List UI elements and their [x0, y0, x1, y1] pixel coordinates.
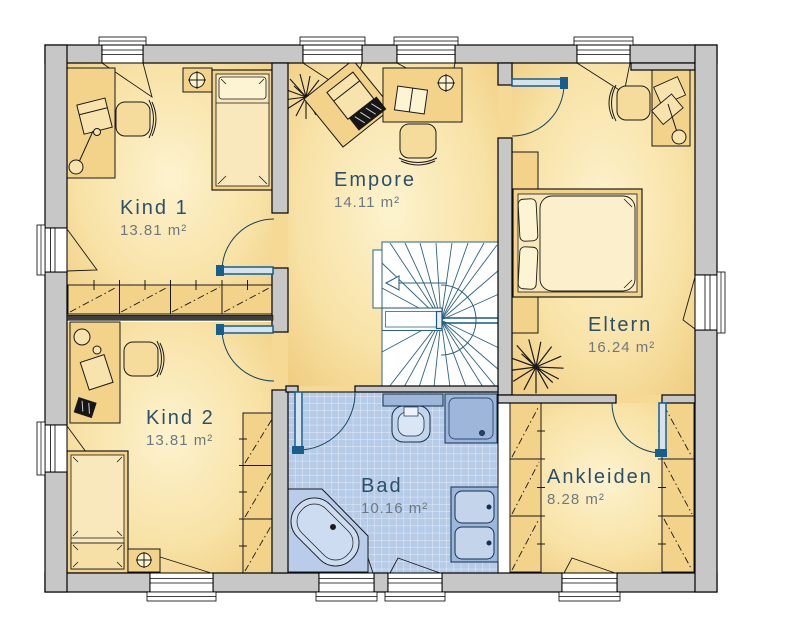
shower: [445, 394, 497, 443]
room-name: Kind 2: [146, 407, 215, 430]
room-area: 10.16 m²: [361, 500, 428, 517]
ankleiden-wardrobe-west: [510, 403, 545, 572]
window: [574, 37, 633, 63]
kind1-wardrobe: [68, 280, 273, 314]
window: [695, 272, 725, 333]
bad-doorway-floor: [298, 386, 355, 392]
room-label-bad: Bad 10.16 m²: [361, 475, 428, 517]
room-label-ankleiden: Ankleiden 8.28 m²: [547, 466, 653, 508]
floorplan-canvas: Kind 1 13.81 m² Empore 14.11 m² Eltern 1…: [0, 0, 800, 641]
room-name: Ankleiden: [547, 466, 653, 489]
eltern-nightstand-north: [512, 152, 538, 189]
window: [385, 573, 445, 601]
desk-lamp-icon: [74, 329, 90, 345]
room-area: 13.81 m²: [146, 432, 215, 449]
room-area: 8.28 m²: [547, 491, 653, 508]
room-label-kind1: Kind 1 13.81 m²: [120, 197, 189, 239]
window: [394, 37, 458, 63]
window: [37, 422, 67, 475]
room-name: Eltern: [588, 314, 655, 337]
eltern-double-bed: [513, 189, 642, 297]
room-label-eltern: Eltern 16.24 m²: [588, 314, 655, 356]
window: [99, 37, 146, 63]
eltern-doorway-floor: [498, 85, 512, 138]
room-name: Kind 1: [120, 197, 189, 220]
kind1-bed: [212, 70, 273, 190]
window: [559, 573, 620, 601]
ankleiden-doorway-floor: [616, 395, 662, 403]
window: [37, 225, 67, 275]
desk-lamp-icon: [69, 160, 83, 174]
kind2-doorway-floor: [272, 332, 288, 390]
room-label-kind2: Kind 2 13.81 m²: [146, 407, 215, 449]
kind-partition-wall: [67, 315, 273, 320]
empore-book: [394, 86, 427, 114]
window: [316, 573, 377, 601]
window: [147, 573, 216, 601]
floorplan-drawing: [0, 0, 800, 641]
room-area: 14.11 m²: [334, 194, 416, 211]
window: [300, 37, 365, 63]
winder-staircase: [373, 242, 501, 387]
room-area: 13.81 m²: [120, 222, 189, 239]
room-name: Bad: [361, 475, 428, 498]
desk-lamp-icon: [672, 130, 686, 144]
eltern-nightstand-south: [512, 296, 538, 333]
kind1-doorway-floor: [272, 213, 288, 268]
room-label-empore: Empore 14.11 m²: [334, 169, 416, 211]
room-area: 16.24 m²: [588, 339, 655, 356]
double-washbasin: [451, 487, 498, 562]
kind2-bed: [67, 451, 128, 573]
room-name: Empore: [334, 169, 416, 192]
kind2-wardrobe: [239, 413, 276, 573]
